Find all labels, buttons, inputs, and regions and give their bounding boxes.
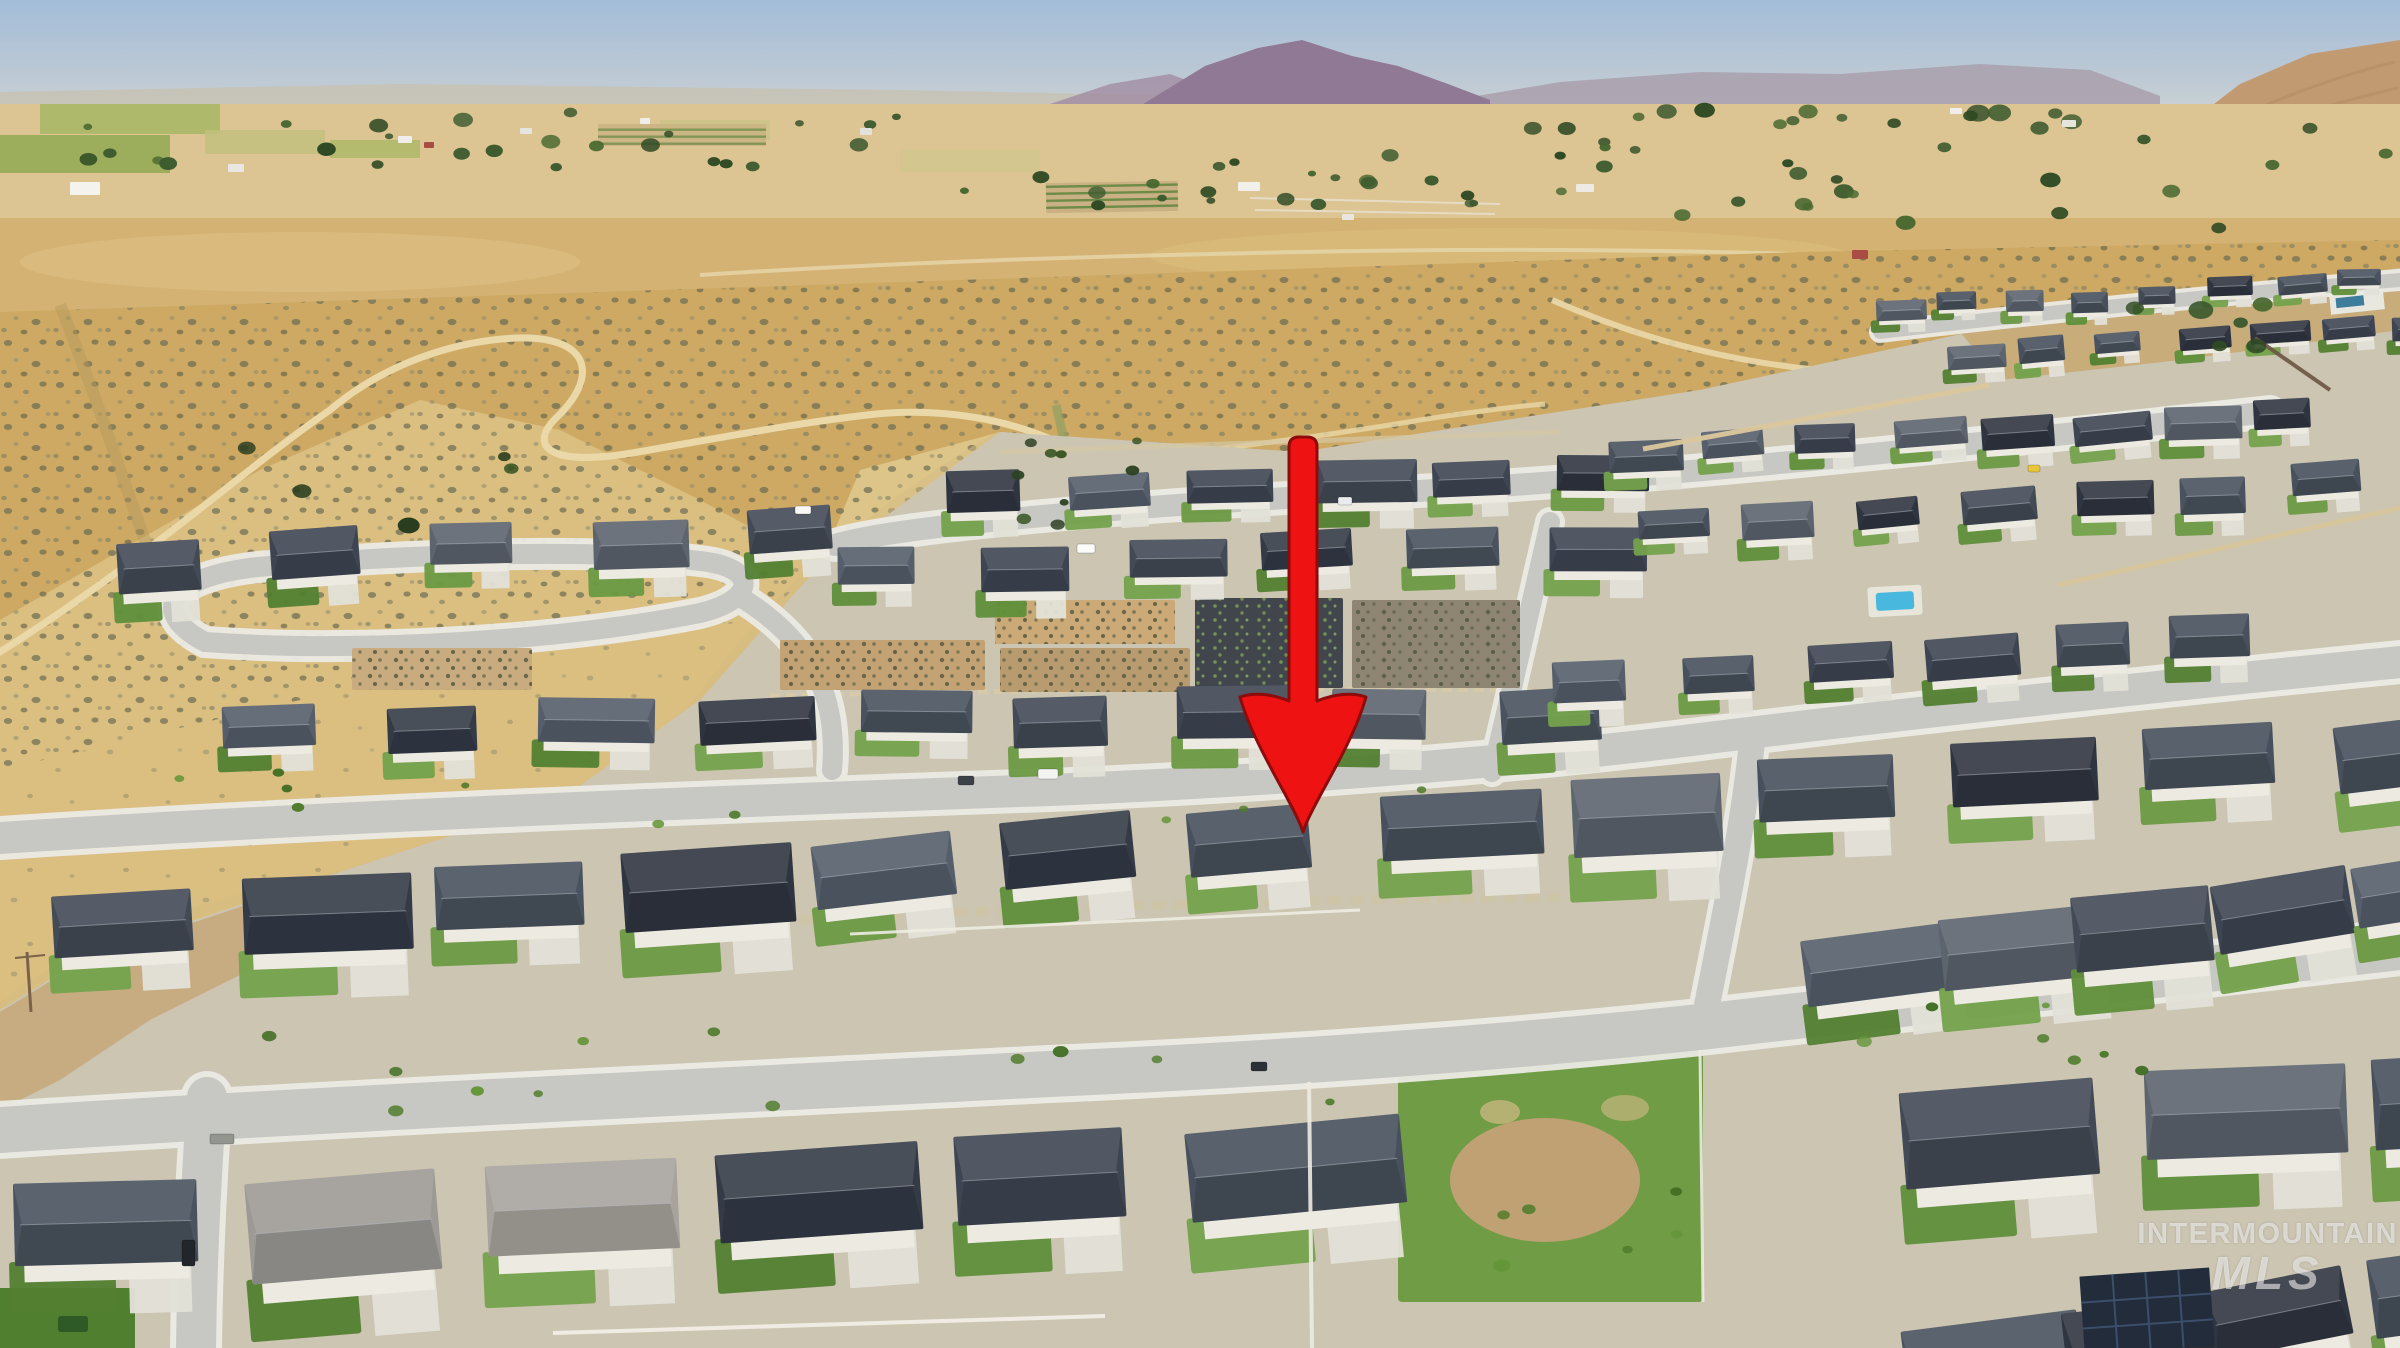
tree — [175, 775, 185, 782]
house — [1546, 659, 1628, 728]
tree — [1146, 179, 1159, 189]
tree — [498, 452, 511, 461]
tree — [453, 148, 470, 160]
farm-building — [520, 128, 532, 134]
tree — [1361, 177, 1378, 189]
house — [381, 706, 479, 782]
garden-plot — [1000, 648, 1190, 692]
tree — [1088, 186, 1105, 199]
tree — [664, 131, 673, 138]
tree — [1311, 199, 1327, 210]
tree — [746, 162, 760, 172]
house — [531, 697, 655, 770]
farm-building — [2062, 120, 2076, 127]
tree — [317, 143, 336, 156]
house — [1893, 1078, 2105, 1249]
house — [1974, 414, 2056, 471]
farm-building — [1342, 214, 1354, 220]
tree — [589, 141, 604, 152]
watermark-line2: MLS — [2137, 1250, 2398, 1297]
house — [1930, 291, 1977, 321]
playground — [58, 1316, 88, 1332]
house — [1400, 527, 1500, 593]
car — [2028, 465, 2040, 472]
tree — [1200, 186, 1216, 197]
farm-building — [640, 118, 650, 124]
tree — [2135, 1066, 2148, 1076]
house — [2065, 292, 2109, 326]
tree — [1012, 470, 1025, 479]
tree — [708, 157, 721, 166]
house — [1374, 788, 1547, 901]
tree — [1988, 105, 2011, 122]
farm-building — [1576, 184, 1594, 192]
house — [993, 810, 1141, 931]
tree — [461, 783, 469, 789]
car — [795, 506, 811, 514]
tree — [1799, 105, 1818, 119]
house — [1751, 754, 1897, 861]
tree — [453, 113, 473, 127]
park-field — [1398, 1050, 1703, 1302]
farm-building — [860, 128, 872, 135]
tree — [864, 120, 876, 129]
tree — [1633, 113, 1645, 121]
house — [1180, 803, 1316, 917]
tree — [1497, 1210, 1510, 1219]
tree — [1157, 195, 1167, 202]
orchard-rows — [598, 124, 766, 146]
tree — [262, 1031, 277, 1041]
tree — [471, 1086, 484, 1095]
tree — [1524, 122, 1542, 135]
house — [428, 861, 586, 969]
house — [1180, 469, 1273, 524]
house — [855, 690, 973, 760]
tree — [2211, 223, 2226, 234]
tree — [1887, 118, 1901, 128]
house — [1801, 641, 1895, 706]
tree — [1896, 216, 1916, 230]
house — [614, 842, 800, 982]
street-vertical-left — [196, 1097, 207, 1348]
tree — [1596, 160, 1613, 172]
house — [479, 1158, 683, 1312]
tree — [1417, 786, 1426, 793]
house — [2204, 865, 2363, 997]
car — [958, 776, 974, 785]
house — [2070, 480, 2155, 538]
farm-building — [1852, 250, 1868, 259]
house — [1888, 416, 1970, 466]
house — [1543, 527, 1647, 598]
tree — [1694, 103, 1715, 118]
house — [831, 546, 914, 607]
garden-plot — [1352, 600, 1520, 688]
watermark-line1: INTERMOUNTAIN — [2137, 1220, 2398, 1250]
tree — [1630, 146, 1641, 154]
tree — [1025, 438, 1037, 447]
farm-building — [70, 182, 100, 195]
house — [110, 539, 204, 625]
tree — [2037, 1034, 2049, 1043]
tree — [1795, 198, 1813, 211]
tree — [2253, 297, 2273, 311]
tree — [1558, 122, 1576, 135]
house — [2136, 722, 2278, 828]
house — [423, 522, 513, 590]
car — [1077, 544, 1095, 553]
house — [1676, 655, 1756, 717]
tree — [1091, 200, 1105, 210]
tree — [1277, 193, 1295, 206]
tree — [1926, 1002, 1938, 1011]
backyard-pool — [1867, 585, 1922, 618]
tree — [1056, 450, 1067, 458]
house — [1426, 460, 1512, 519]
garden-plot — [1195, 598, 1343, 688]
tree — [1782, 159, 1793, 167]
house — [1954, 485, 2039, 546]
tree — [1522, 1204, 1536, 1214]
tree — [765, 1101, 780, 1112]
tree — [1425, 175, 1439, 185]
tree — [1053, 1046, 1069, 1057]
tree — [1060, 499, 1069, 506]
tree — [2246, 339, 2266, 353]
house — [7, 1179, 200, 1317]
tree — [729, 811, 741, 819]
tree — [1831, 175, 1843, 184]
house — [1062, 472, 1152, 532]
house — [2173, 476, 2246, 537]
house — [2271, 273, 2329, 308]
tree — [1213, 162, 1225, 171]
tree — [1308, 171, 1316, 177]
tree — [1937, 142, 1951, 152]
tree — [2265, 160, 2279, 170]
tree — [1600, 143, 1611, 151]
house — [1564, 773, 1726, 906]
house — [2064, 885, 2219, 1019]
house — [947, 1127, 1129, 1280]
tree — [398, 518, 420, 534]
tree — [369, 119, 388, 133]
tree — [564, 108, 577, 118]
tree — [2137, 135, 2150, 145]
tree — [80, 153, 98, 166]
tree — [1773, 119, 1787, 129]
tree — [1325, 1098, 1335, 1105]
tree — [1239, 806, 1248, 813]
tree — [578, 1037, 589, 1045]
tree — [1461, 191, 1475, 201]
tree — [159, 157, 177, 170]
tree — [2068, 1055, 2081, 1064]
house — [236, 872, 416, 1001]
tree — [292, 484, 311, 498]
tree — [1126, 466, 1140, 476]
tree — [1556, 187, 1567, 195]
house — [1944, 737, 2101, 847]
house — [1850, 496, 1922, 549]
tree — [1011, 1054, 1025, 1064]
mls-watermark: INTERMOUNTAIN MLS — [2137, 1220, 2398, 1296]
house — [2158, 405, 2243, 460]
tree — [533, 1090, 543, 1097]
tree — [652, 820, 664, 829]
tree — [1381, 149, 1398, 161]
tree — [2212, 341, 2227, 352]
house — [45, 888, 196, 996]
house — [741, 505, 835, 582]
tree — [850, 138, 868, 151]
garden-plot — [352, 648, 532, 690]
farm-building — [1950, 108, 1962, 114]
tree — [486, 145, 503, 157]
tree — [720, 159, 733, 168]
farm-building — [228, 164, 244, 172]
tree — [282, 785, 293, 793]
tree — [1206, 197, 1215, 203]
house — [2316, 315, 2377, 354]
house — [2284, 459, 2363, 517]
tree — [1836, 114, 1847, 122]
farm-building — [424, 142, 434, 148]
tree — [1017, 514, 1032, 524]
farm-building — [1238, 182, 1260, 191]
tree — [385, 133, 393, 139]
tree — [2051, 207, 2068, 219]
tree — [2126, 301, 2144, 314]
house — [587, 519, 691, 599]
tree — [83, 124, 92, 130]
tree — [1786, 116, 1799, 125]
tree — [2303, 123, 2318, 134]
tree — [504, 463, 519, 473]
tree — [2189, 301, 2214, 319]
tree — [1789, 167, 1807, 180]
tree — [273, 768, 285, 776]
tree — [1966, 105, 1990, 122]
car — [1338, 497, 1352, 505]
tree — [2379, 149, 2393, 159]
tree — [1555, 152, 1566, 160]
car — [1251, 1062, 1267, 1071]
tree — [708, 1027, 721, 1036]
tree — [892, 114, 901, 120]
tree — [1857, 1036, 1872, 1047]
tree — [1657, 104, 1677, 119]
tree — [2042, 1003, 2050, 1009]
tree — [238, 442, 256, 455]
house — [2331, 269, 2381, 296]
tree — [1132, 437, 1142, 444]
house — [263, 525, 363, 610]
house — [2138, 1063, 2351, 1214]
house — [1006, 696, 1109, 780]
house — [940, 469, 1021, 539]
tree — [1847, 190, 1859, 198]
tree — [1465, 199, 1477, 207]
tree — [1152, 1056, 1163, 1064]
tree — [795, 120, 804, 126]
house — [1178, 1114, 1412, 1278]
house — [216, 703, 318, 774]
house — [2247, 398, 2312, 449]
tree — [541, 135, 560, 149]
house — [2163, 613, 2252, 685]
tree — [1674, 209, 1690, 221]
house — [975, 547, 1070, 620]
car — [182, 1240, 195, 1266]
tree — [960, 188, 969, 194]
house — [692, 696, 818, 773]
house — [1632, 508, 1711, 557]
tree — [1622, 1246, 1632, 1253]
house — [1311, 459, 1418, 530]
tree — [1493, 1260, 1510, 1272]
house — [1918, 632, 2023, 708]
tree — [2099, 1051, 2108, 1058]
house — [238, 1168, 447, 1346]
tree — [1671, 1230, 1682, 1238]
house — [2011, 334, 2067, 380]
tree — [1731, 197, 1745, 207]
tree — [1051, 519, 1065, 529]
tree — [2048, 108, 2062, 118]
house — [1870, 299, 1928, 334]
tree — [389, 1067, 402, 1076]
house — [2049, 622, 2131, 694]
house — [1788, 423, 1856, 471]
tree — [2162, 185, 2180, 198]
house — [1735, 501, 1816, 564]
house — [708, 1141, 927, 1298]
car — [1038, 769, 1058, 779]
garden-plot — [780, 640, 985, 690]
tree — [281, 120, 292, 128]
tree — [1045, 449, 1057, 458]
tree — [1161, 816, 1171, 823]
tree — [2040, 173, 2060, 188]
car — [210, 1134, 234, 1144]
tree — [1229, 158, 1239, 166]
tree — [2030, 122, 2048, 135]
tree — [388, 1105, 403, 1116]
tree — [1330, 174, 1340, 181]
tree — [292, 803, 305, 812]
aerial-photo-canvas — [0, 0, 2400, 1348]
tree — [2233, 317, 2248, 327]
tree — [1670, 1187, 1682, 1196]
farm-building — [398, 136, 412, 143]
house — [1123, 539, 1228, 601]
house — [2088, 331, 2142, 367]
tree — [641, 138, 660, 152]
house — [2066, 411, 2154, 466]
aerial-photo: INTERMOUNTAIN MLS — [0, 0, 2400, 1348]
tree — [550, 163, 561, 171]
tree — [103, 148, 116, 158]
house — [2000, 290, 2045, 325]
house — [1941, 343, 2008, 385]
tree — [1032, 171, 1049, 183]
tree — [372, 160, 384, 169]
